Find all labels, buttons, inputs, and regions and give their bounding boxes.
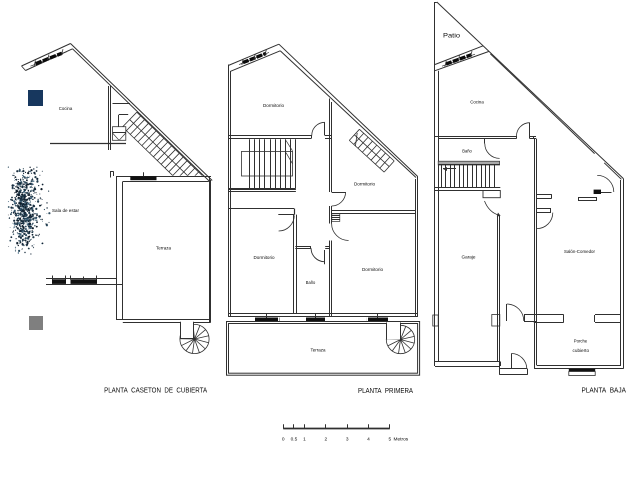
svg-text:PLANTA CASETON DE CUBIERTA: PLANTA CASETON DE CUBIERTA: [104, 388, 207, 395]
svg-text:Porche: Porche: [574, 339, 588, 345]
svg-text:Dormitorio: Dormitorio: [354, 182, 375, 188]
svg-text:Terraza: Terraza: [311, 348, 326, 354]
svg-text:PLANTA BAJA: PLANTA BAJA: [581, 387, 626, 394]
svg-text:Dormitorio: Dormitorio: [263, 103, 284, 109]
svg-text:0: 0: [282, 437, 285, 443]
svg-text:4: 4: [367, 437, 370, 443]
svg-text:5: 5: [388, 437, 391, 443]
svg-text:Salón-Comedor: Salón-Comedor: [564, 249, 595, 255]
svg-text:Garaje: Garaje: [462, 255, 476, 261]
svg-text:Metros: Metros: [394, 437, 409, 443]
svg-text:Cocina: Cocina: [59, 106, 73, 112]
svg-text:cubierto: cubierto: [573, 348, 590, 354]
svg-text:0.5: 0.5: [291, 437, 298, 443]
svg-text:Patio: Patio: [443, 33, 460, 40]
svg-text:Dormitorio: Dormitorio: [362, 267, 383, 273]
svg-text:3: 3: [346, 437, 349, 443]
svg-text:1: 1: [303, 437, 306, 443]
svg-text:Baño: Baño: [306, 280, 316, 286]
svg-text:2: 2: [324, 437, 327, 443]
svg-text:Baño: Baño: [462, 149, 472, 155]
svg-text:Terraza: Terraza: [156, 246, 171, 252]
svg-text:PLANTA PRIMERA: PLANTA PRIMERA: [358, 388, 413, 395]
svg-text:Sala de estar: Sala de estar: [52, 208, 79, 214]
svg-text:Cocina: Cocina: [470, 100, 484, 106]
svg-text:Dormitorio: Dormitorio: [254, 255, 275, 261]
